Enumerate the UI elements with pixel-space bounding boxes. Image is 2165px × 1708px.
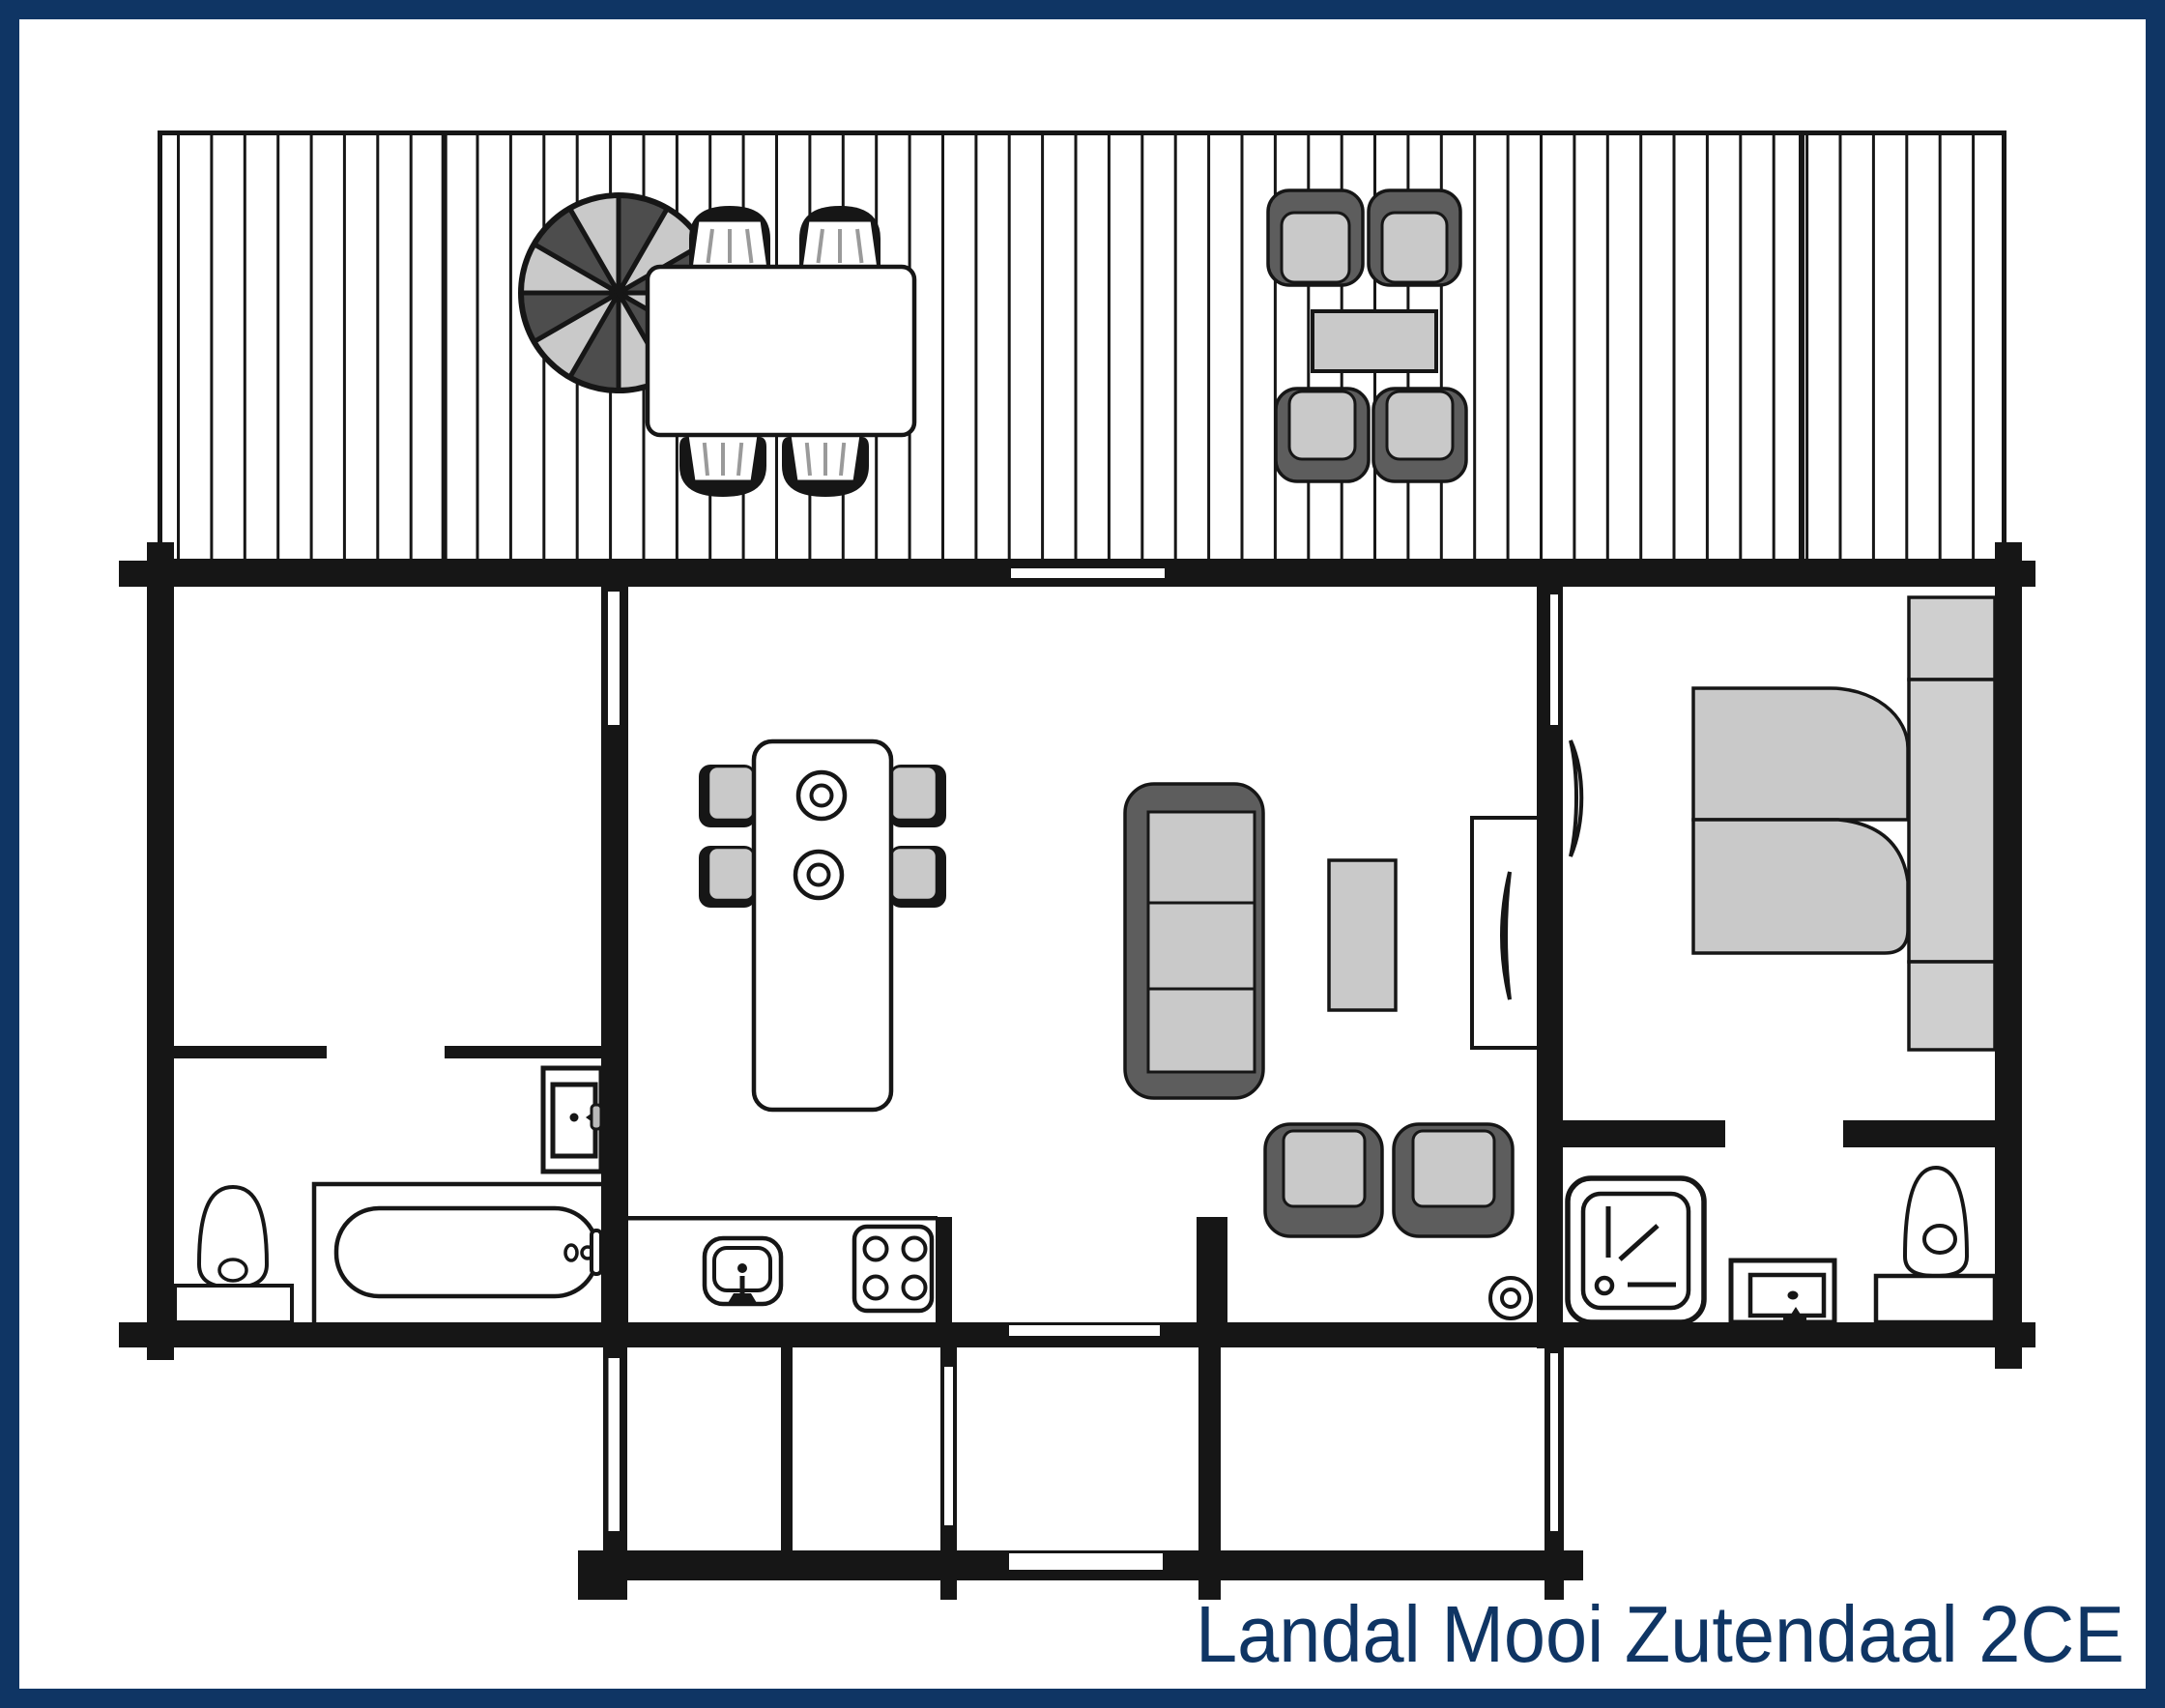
svg-text:Landal Mooi Zutendaal 2CE: Landal Mooi Zutendaal 2CE <box>1196 1589 2124 1679</box>
